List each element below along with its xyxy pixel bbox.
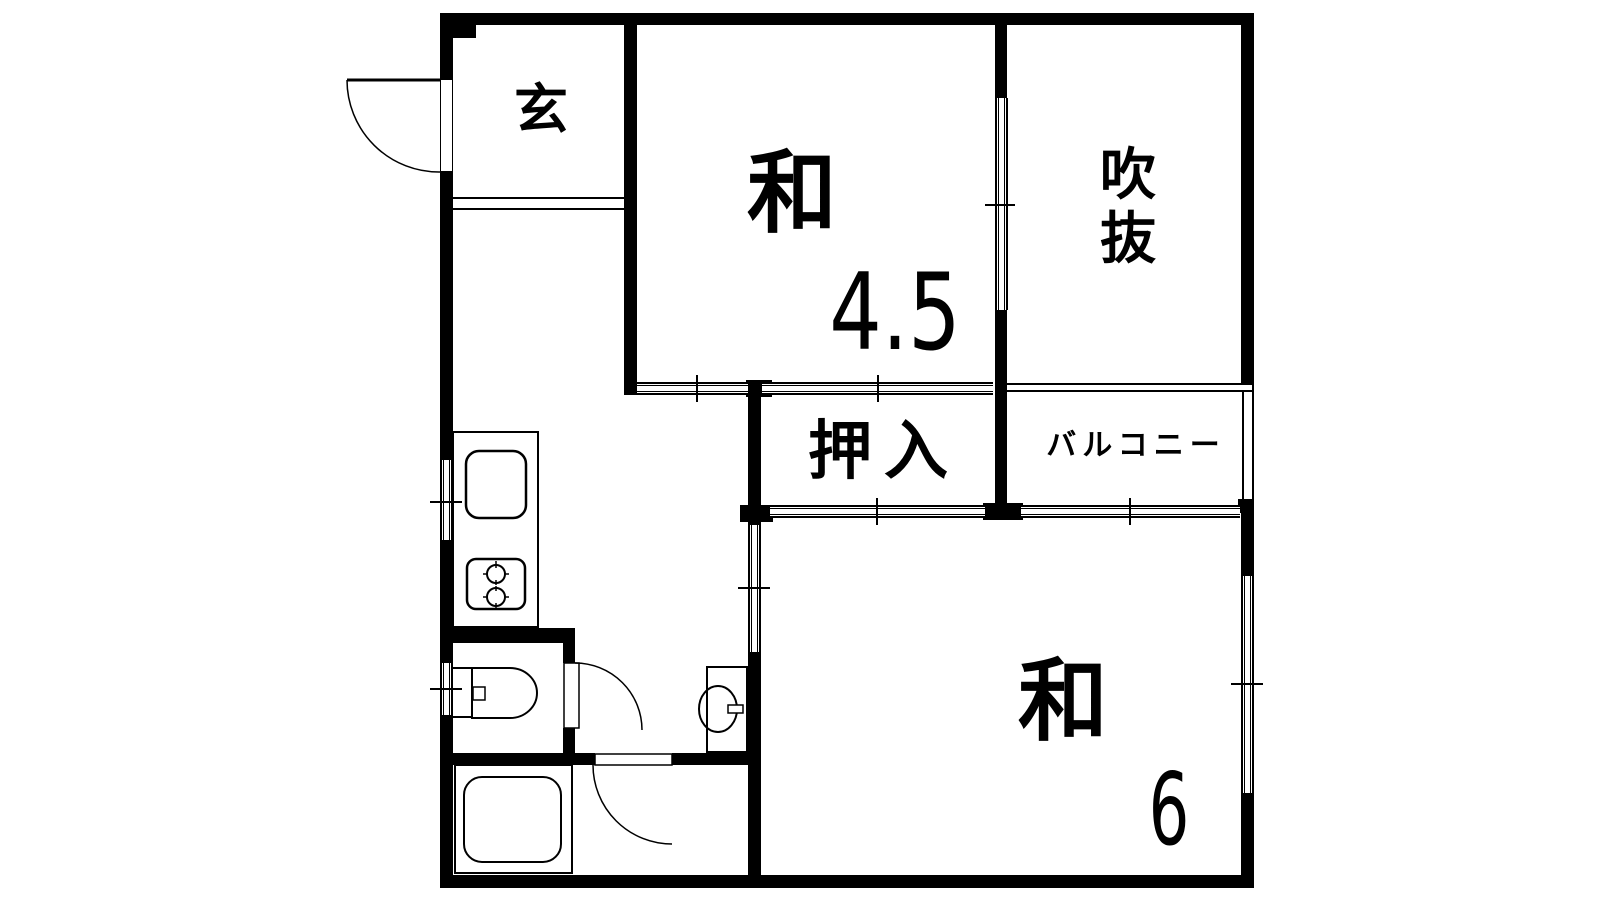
washbasin-faucet-icon [728,705,743,713]
toilet-door-leaf [564,663,579,728]
kitchen-sink-icon [466,451,526,518]
label-washitsu45: 和 [747,149,837,239]
toilet-door-swing-arc [575,663,642,730]
label-genkan: 玄 [514,83,568,137]
entrance-door-swing-arc [347,80,440,172]
stove-burner-ticks [483,561,509,610]
bathroom-door-leaf [595,754,672,765]
label-balcony: バルコニー [1040,431,1225,461]
floorplan-canvas: 玄 和 4.5 吹 抜 押入 バルコニー 和 6 [0,0,1600,900]
label-washitsu6-size: 6 [1149,760,1190,860]
toilet-seat-notch [473,687,485,700]
bathroom-door-swing-arc [593,765,672,844]
label-washitsu45-size: 4.5 [829,260,960,366]
toilet-tank-icon [452,668,472,717]
bathtub-inner-icon [464,777,561,862]
label-fukinuke-line1: 吹 [1100,148,1156,204]
label-oshiire: 押入 [796,420,960,484]
label-washitsu6: 和 [1018,657,1108,747]
label-fukinuke-line2: 抜 [1100,212,1156,268]
